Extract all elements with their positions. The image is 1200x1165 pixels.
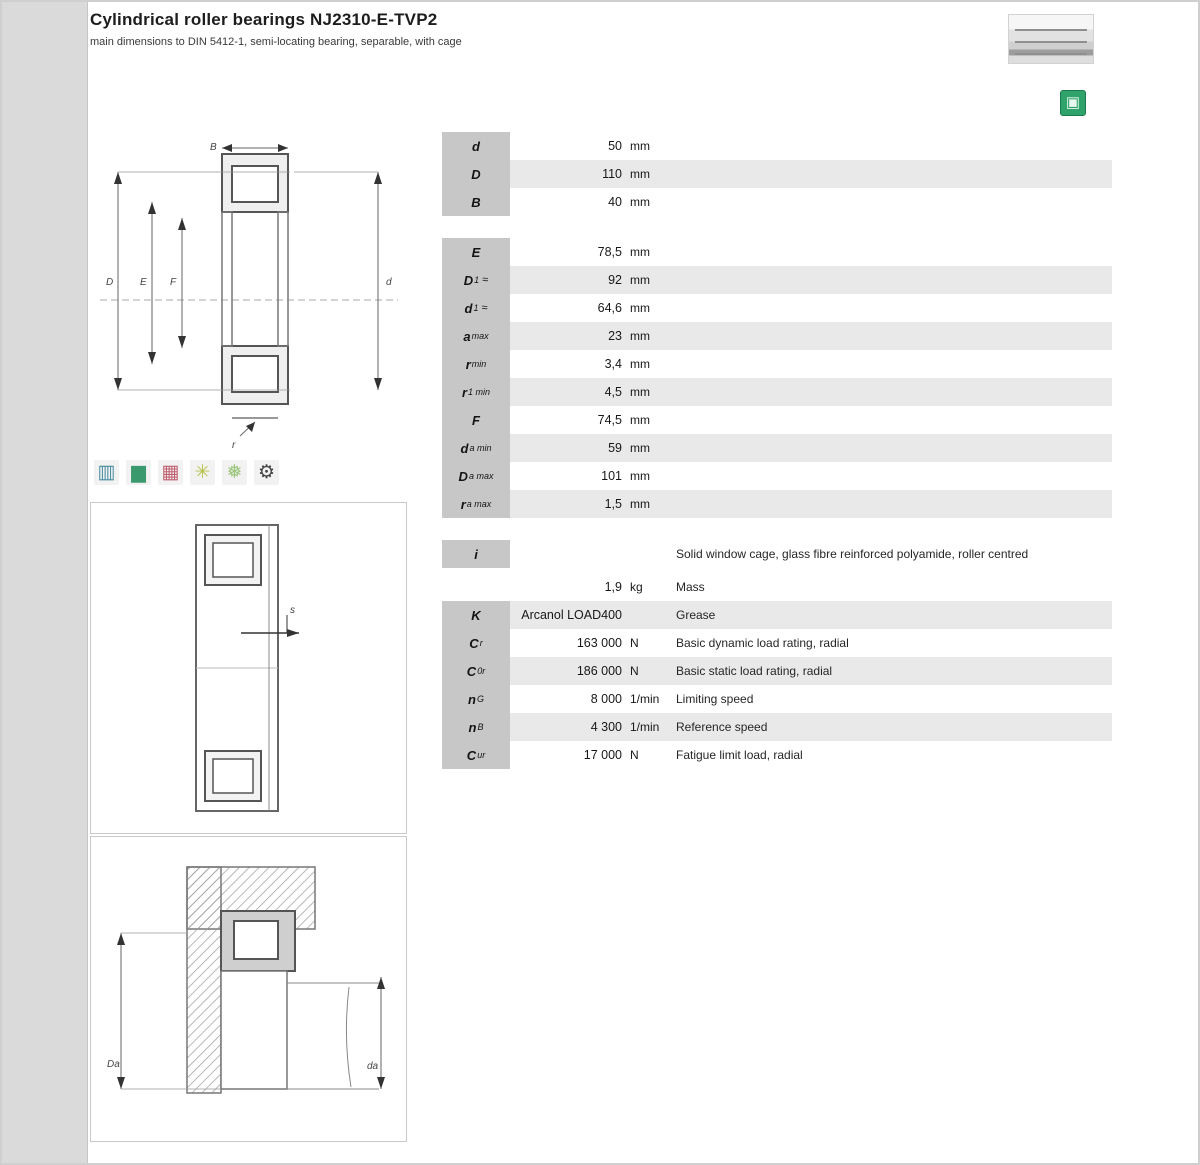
table-row: Cur17 000NFatigue limit load, radial (442, 741, 1112, 769)
row-label: K (442, 601, 510, 629)
row-value: 17 000 (510, 748, 622, 762)
table-row: D110mm (442, 160, 1112, 188)
row-label: d1≈ (442, 294, 510, 322)
row-unit: 1/min (622, 720, 674, 734)
table-row: da min59mm (442, 434, 1112, 462)
row-unit: mm (622, 441, 674, 455)
table-row: Da max101mm (442, 462, 1112, 490)
row-label (442, 573, 510, 601)
row-unit: mm (622, 497, 674, 511)
section-main-dimensions: d50mmD110mmB40mm (442, 132, 1112, 216)
row-label: ra max (442, 490, 510, 518)
row-value: 50 (510, 139, 622, 153)
row-value: 3,4 (510, 357, 622, 371)
page-subtitle: main dimensions to DIN 5412-1, semi-loca… (90, 36, 970, 48)
table-row: d1≈64,6mm (442, 294, 1112, 322)
row-unit: kg (622, 580, 674, 594)
table-row: D1≈92mm (442, 266, 1112, 294)
svg-text:D: D (106, 277, 113, 288)
table-row: nB4 3001/minReference speed (442, 713, 1112, 741)
main-dimensions-drawing: B D E F d r (90, 140, 408, 458)
row-label: amax (442, 322, 510, 350)
row-value: 163 000 (510, 636, 622, 650)
table-row: F74,5mm (442, 406, 1112, 434)
svg-text:B: B (210, 142, 217, 153)
displacement-drawing: s (91, 503, 406, 833)
row-label: nB (442, 713, 510, 741)
svg-text:Da: Da (107, 1059, 120, 1070)
row-unit: mm (622, 301, 674, 315)
row-label: nG (442, 685, 510, 713)
logo-line (1015, 29, 1087, 31)
svg-text:E: E (140, 277, 147, 288)
page-header: Cylindrical roller bearings NJ2310-E-TVP… (90, 10, 970, 48)
feature-icon-strip: ▥▆▦✳❅⚙ (94, 460, 279, 485)
row-label: da min (442, 434, 510, 462)
temperature-icon: ✳ (190, 460, 215, 485)
table-row: iSolid window cage, glass fibre reinforc… (442, 540, 1112, 568)
mounting-icon: ⚙ (254, 460, 279, 485)
row-label: Cr (442, 629, 510, 657)
logo-line (1015, 53, 1087, 55)
row-value: 40 (510, 195, 622, 209)
row-description: Fatigue limit load, radial (674, 748, 1112, 762)
row-value: 4,5 (510, 385, 622, 399)
table-row: KArcanol LOAD400Grease (442, 601, 1112, 629)
mounting-drawing-panel: Da da (90, 836, 407, 1142)
speed-icon: ▆ (126, 460, 151, 485)
row-label: F (442, 406, 510, 434)
row-unit: mm (622, 245, 674, 259)
page-title: Cylindrical roller bearings NJ2310-E-TVP… (90, 10, 970, 30)
logo-line (1015, 41, 1087, 43)
row-label: d (442, 132, 510, 160)
row-value: 110 (510, 167, 622, 181)
row-value: 8 000 (510, 692, 622, 706)
row-value: 23 (510, 329, 622, 343)
row-description: Basic static load rating, radial (674, 664, 1112, 678)
row-description: Reference speed (674, 720, 1112, 734)
brand-logo (1008, 14, 1094, 64)
row-value: 1,9 (510, 580, 622, 594)
svg-text:da: da (367, 1061, 379, 1072)
row-value: 186 000 (510, 664, 622, 678)
row-value: 4 300 (510, 720, 622, 734)
table-row: nG8 0001/minLimiting speed (442, 685, 1112, 713)
row-unit: mm (622, 413, 674, 427)
row-value: 101 (510, 469, 622, 483)
row-label: E (442, 238, 510, 266)
row-description: Limiting speed (674, 692, 1112, 706)
row-value: 74,5 (510, 413, 622, 427)
row-label: Cur (442, 741, 510, 769)
row-description: Mass (674, 580, 1112, 594)
row-label: C0r (442, 657, 510, 685)
displacement-drawing-panel: s (90, 502, 407, 834)
row-value: 64,6 (510, 301, 622, 315)
table-row: B40mm (442, 188, 1112, 216)
row-label: r1 min (442, 378, 510, 406)
svg-text:r: r (232, 440, 236, 451)
section-cage-note: iSolid window cage, glass fibre reinforc… (442, 540, 1112, 568)
row-unit: N (622, 748, 674, 762)
row-unit: N (622, 664, 674, 678)
section-performance: 1,9kgMassKArcanol LOAD400GreaseCr163 000… (442, 573, 1112, 769)
row-value: 92 (510, 273, 622, 287)
left-gutter (2, 2, 88, 1163)
lubrication-icon: ❅ (222, 460, 247, 485)
datasheet-page: Cylindrical roller bearings NJ2310-E-TVP… (0, 0, 1200, 1165)
table-row: ra max1,5mm (442, 490, 1112, 518)
row-description: Solid window cage, glass fibre reinforce… (674, 547, 1112, 561)
load-direction-icon: ▥ (94, 460, 119, 485)
table-row: r1 min4,5mm (442, 378, 1112, 406)
row-value: Arcanol LOAD400 (510, 608, 622, 622)
table-row: 1,9kgMass (442, 573, 1112, 601)
table-row: E78,5mm (442, 238, 1112, 266)
table-row: d50mm (442, 132, 1112, 160)
row-unit: mm (622, 357, 674, 371)
row-value: 78,5 (510, 245, 622, 259)
row-unit: mm (622, 385, 674, 399)
mounting-drawing: Da da (91, 837, 406, 1141)
load-grid-icon: ▦ (158, 460, 183, 485)
row-label: rmin (442, 350, 510, 378)
row-unit: mm (622, 273, 674, 287)
row-unit: mm (622, 329, 674, 343)
row-unit: mm (622, 469, 674, 483)
row-unit: mm (622, 195, 674, 209)
svg-text:F: F (170, 277, 177, 288)
row-label: B (442, 188, 510, 216)
row-unit: N (622, 636, 674, 650)
svg-text:d: d (386, 277, 392, 288)
row-value: 1,5 (510, 497, 622, 511)
row-unit: mm (622, 167, 674, 181)
row-description: Grease (674, 608, 1112, 622)
table-row: C0r186 000NBasic static load rating, rad… (442, 657, 1112, 685)
row-label: i (442, 540, 510, 568)
table-row: rmin3,4mm (442, 350, 1112, 378)
table-row: amax23mm (442, 322, 1112, 350)
section-dimensions: E78,5mmD1≈92mmd1≈64,6mmamax23mmrmin3,4mm… (442, 238, 1112, 518)
row-unit: mm (622, 139, 674, 153)
svg-text:s: s (290, 605, 295, 616)
row-label: D1≈ (442, 266, 510, 294)
row-unit: 1/min (622, 692, 674, 706)
catalog-icon[interactable]: ▣ (1060, 90, 1086, 116)
row-label: Da max (442, 462, 510, 490)
row-label: D (442, 160, 510, 188)
row-description: Basic dynamic load rating, radial (674, 636, 1112, 650)
table-row: Cr163 000NBasic dynamic load rating, rad… (442, 629, 1112, 657)
row-value: 59 (510, 441, 622, 455)
specification-table: d50mmD110mmB40mmE78,5mmD1≈92mmd1≈64,6mma… (442, 132, 1112, 791)
